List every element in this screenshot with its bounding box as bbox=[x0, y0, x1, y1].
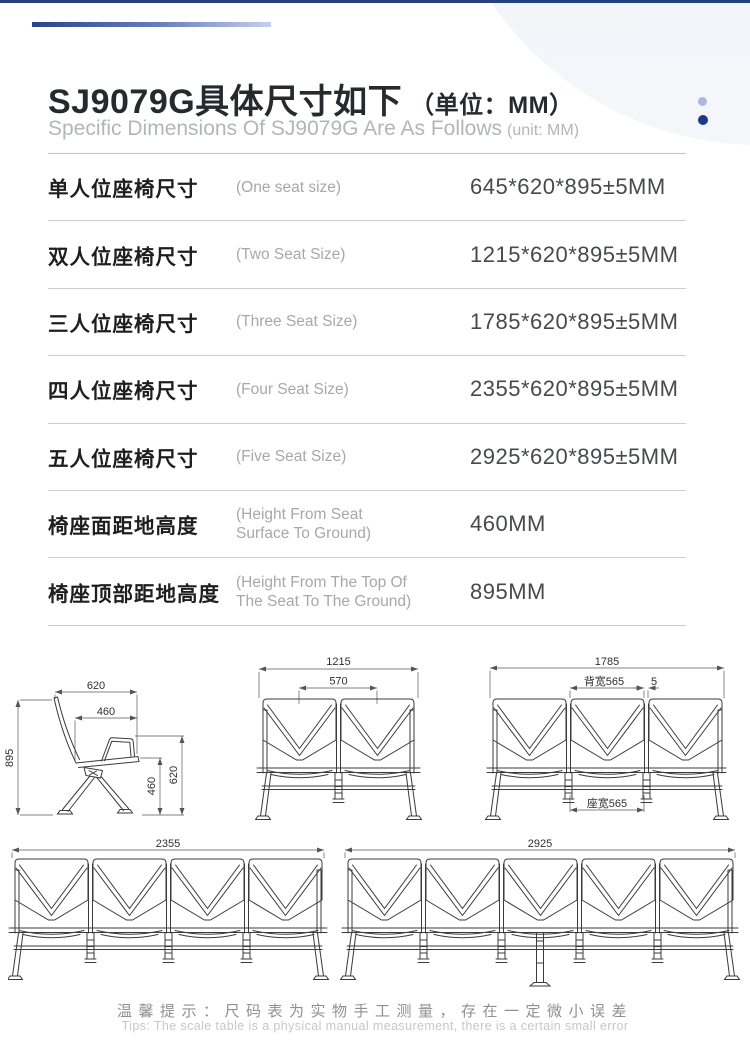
dim-label: 460 bbox=[146, 777, 158, 795]
footer-tip-cn: 温馨提示：尺码表为实物手工测量，存在一定微小误差 bbox=[0, 1000, 750, 1021]
drawing-five-seat-front-view: 2925 bbox=[340, 838, 742, 1000]
spec-sheet-page: SJ9079G具体尺寸如下（单位：MM） Specific Dimensions… bbox=[0, 0, 750, 1053]
dim-label: 1785 bbox=[595, 656, 619, 668]
drawing-two-seat-front-view: 1215 570 bbox=[255, 652, 430, 827]
dim-label: 5 bbox=[651, 676, 657, 688]
drawing-single-seat-side-view: 620 460 895 460 620 bbox=[5, 672, 205, 827]
dim-label: 2355 bbox=[156, 838, 180, 850]
dim-label: 620 bbox=[87, 680, 105, 692]
chair-outline bbox=[341, 859, 740, 986]
drawing-three-seat-front-view: 1785 背宽565 5 座宽565 bbox=[483, 652, 741, 832]
dim-label: 620 bbox=[168, 766, 180, 784]
dim-label: 2925 bbox=[528, 838, 552, 850]
dim-label: 1215 bbox=[326, 656, 350, 668]
chair-outline bbox=[8, 859, 329, 980]
technical-drawings: 620 460 895 460 620 bbox=[0, 0, 750, 1053]
footer-tip-en: Tips: The scale table is a physical manu… bbox=[0, 1019, 750, 1033]
dim-label: 570 bbox=[329, 676, 347, 688]
dim-label: 背宽565 bbox=[584, 674, 624, 688]
drawing-four-seat-front-view: 2355 bbox=[8, 838, 338, 993]
dim-label: 座宽565 bbox=[587, 796, 627, 810]
dim-label: 460 bbox=[97, 706, 115, 718]
chair-outline bbox=[256, 699, 422, 820]
dim-label: 895 bbox=[5, 749, 16, 767]
